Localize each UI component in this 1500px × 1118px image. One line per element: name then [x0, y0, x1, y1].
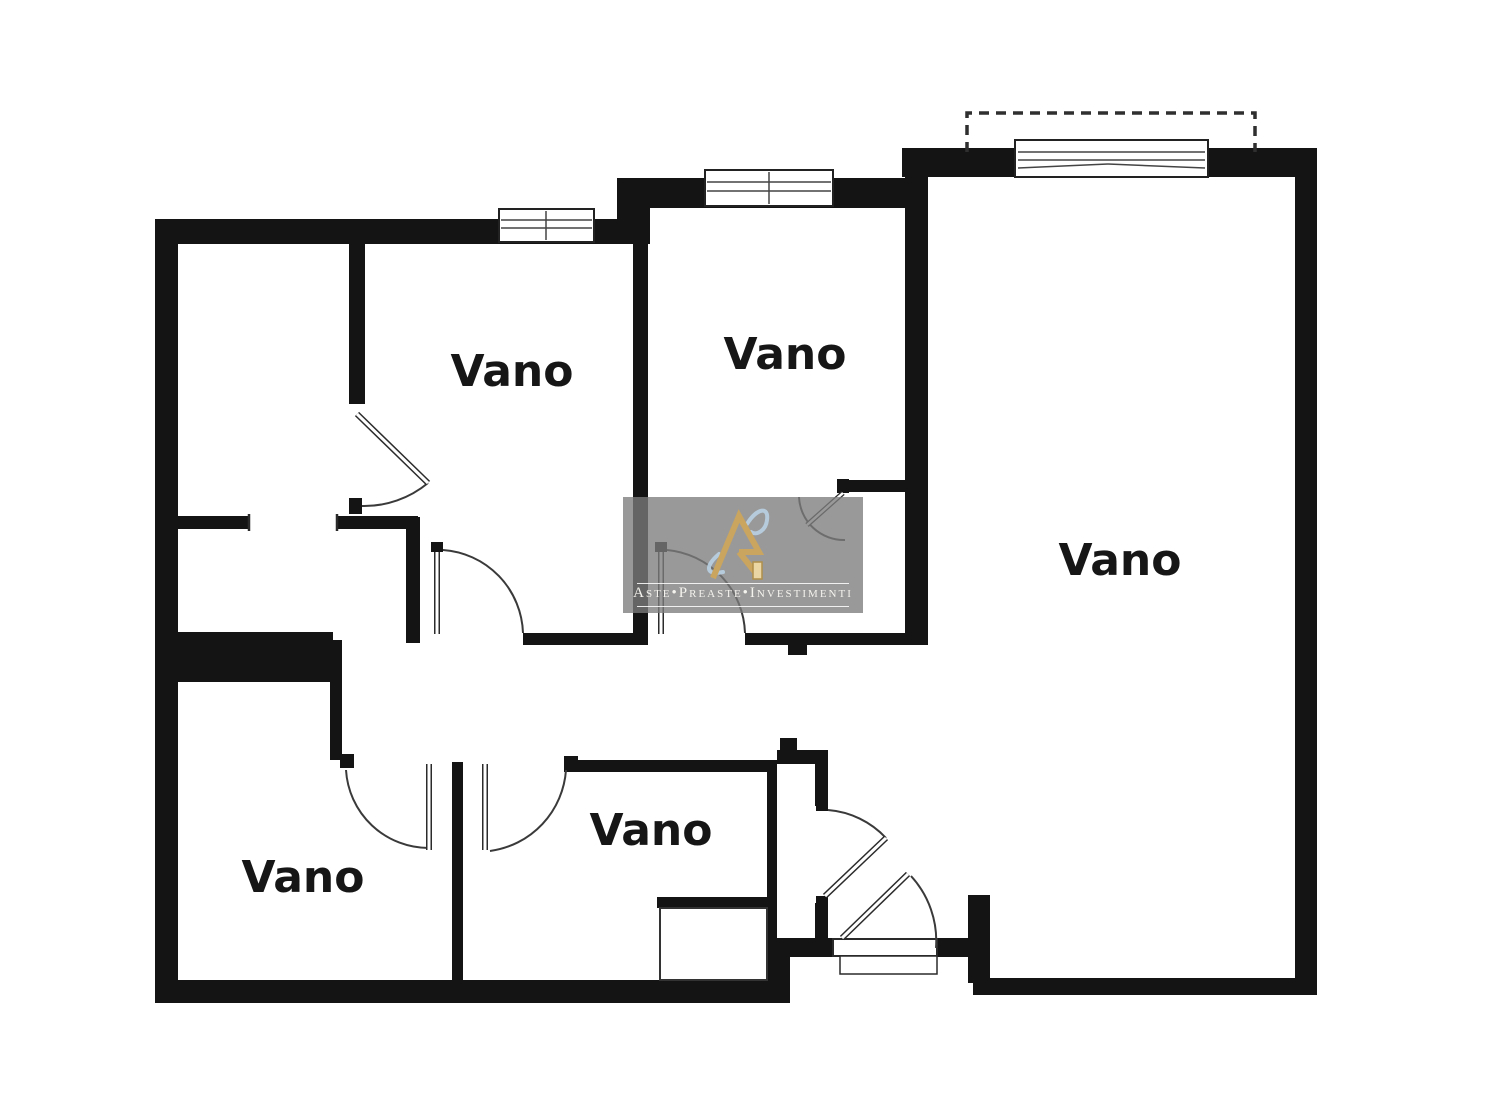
door-hinge-pad: [816, 802, 828, 811]
door-hinge-pad: [340, 754, 354, 768]
storage-niche: [660, 908, 767, 980]
room-label-bottom-left: Vano: [238, 852, 368, 904]
room-label-top-left: Vano: [447, 346, 577, 398]
door-hinge-pad: [837, 479, 849, 493]
wall: [162, 632, 333, 682]
floor-plan-page: Vano Vano Vano Vano Vano Aste•Preaste•In…: [0, 0, 1500, 1118]
agency-watermark: Aste•Preaste•Investimenti: [623, 497, 863, 613]
door: [346, 764, 429, 850]
door-swing-arc: [828, 810, 886, 838]
wall: [1295, 148, 1317, 995]
wall: [155, 219, 178, 1003]
door-hinge-pad: [564, 756, 578, 772]
wall: [657, 897, 767, 908]
logo-i-bar: [753, 562, 762, 579]
wall: [157, 980, 790, 1003]
door-leaf-fill: [842, 874, 908, 938]
wall: [745, 633, 927, 645]
door-hinge-pad: [431, 542, 443, 552]
door-hinge-pad: [816, 896, 828, 905]
room-label-right-large: Vano: [1055, 535, 1185, 587]
door-leaf-fill: [825, 838, 886, 896]
wall: [780, 738, 797, 750]
door-swing-arc: [443, 550, 523, 633]
door-leaf-fill: [357, 414, 428, 483]
wall: [777, 750, 828, 764]
window: [705, 170, 833, 206]
door: [842, 874, 936, 948]
watermark-divider: [637, 606, 849, 607]
wall: [523, 633, 633, 645]
room-label-top-middle: Vano: [720, 329, 850, 381]
wall: [815, 903, 828, 938]
entrance-threshold: [833, 939, 937, 956]
wall: [330, 640, 342, 760]
wall: [452, 762, 463, 980]
wall: [973, 978, 1317, 995]
door-swing-arc: [346, 770, 429, 848]
wall: [570, 760, 777, 772]
wall: [840, 480, 917, 492]
wall: [788, 645, 807, 655]
room-label-bottom-middle: Vano: [586, 805, 716, 857]
wall: [937, 938, 973, 957]
door: [437, 550, 523, 634]
wall: [767, 760, 777, 983]
wall: [905, 148, 928, 645]
wall: [815, 764, 828, 806]
wall: [178, 516, 248, 529]
door: [485, 764, 566, 851]
door: [357, 414, 428, 506]
watermark-divider: [637, 583, 849, 584]
window: [1015, 140, 1208, 177]
door-swing-arc: [362, 483, 428, 506]
watermark-brand-text: Aste•Preaste•Investimenti: [623, 585, 863, 602]
window: [499, 209, 594, 242]
door-swing-arc: [490, 770, 566, 851]
door-hinge-pad: [349, 498, 362, 514]
wall: [349, 244, 365, 404]
wall: [406, 517, 420, 643]
entrance-step: [840, 956, 937, 974]
door: [825, 810, 886, 896]
brand-logo-icon: [691, 502, 795, 582]
door-swing-arc: [911, 876, 936, 948]
